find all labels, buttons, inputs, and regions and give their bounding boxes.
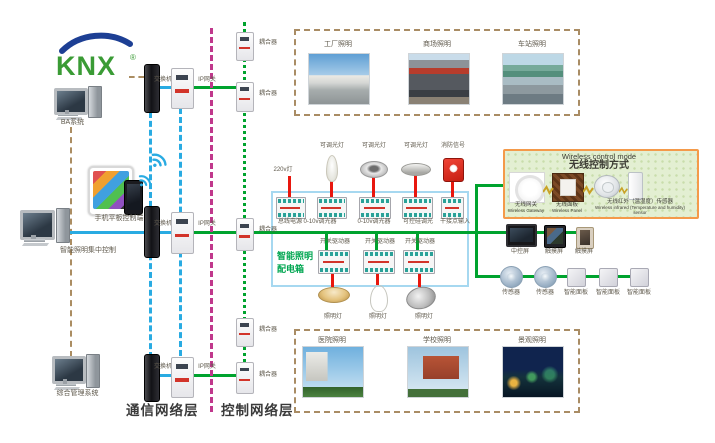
wireless-title-cn: 无线控制方式 <box>503 160 695 172</box>
dimmable-lamp-label: 可调光灯 <box>314 143 350 150</box>
central-control-pc <box>20 208 70 246</box>
coupler-icon <box>236 362 254 394</box>
management-system-label: 综合管理系统 <box>45 390 110 398</box>
network-switch-icon <box>144 354 160 402</box>
ctrl-layer-label: 控制网络层 <box>221 399 294 419</box>
separator-line <box>210 28 213 412</box>
coupler-label: 耦合器 <box>254 40 282 47</box>
coupler-icon <box>236 82 254 112</box>
school-lighting-label: 学校照明 <box>417 337 457 345</box>
sensor-icon <box>534 266 557 288</box>
lamp-label: 照明灯 <box>317 314 349 321</box>
dimmer-label: 0-10v调光器 <box>350 219 398 226</box>
dimmable-lamp-label: 可调光灯 <box>398 143 434 150</box>
fire-signal-label: 消防信号 <box>435 143 471 150</box>
bus-line-sensor-seg4 <box>616 275 630 278</box>
load-line-fire <box>451 180 454 197</box>
network-switch-icon <box>144 64 160 113</box>
load-line-220v <box>288 176 291 197</box>
load-line-lamp3 <box>418 272 421 287</box>
dimmer-label: 0-10v调光器 <box>296 219 344 226</box>
fire-alarm-icon <box>443 158 464 182</box>
coupler-icon <box>236 32 254 61</box>
station-lighting-label: 车站照明 <box>512 41 552 49</box>
central-screen-icon <box>506 224 537 247</box>
dimmer-module-icon <box>317 197 347 219</box>
factory-lighting-label: 工厂照明 <box>318 41 358 49</box>
touch-screen-label: 触摸屏 <box>570 249 598 256</box>
management-line-vertical <box>70 127 72 357</box>
smart-panel-label: 智能面板 <box>560 290 592 297</box>
hospital-photo <box>302 346 364 398</box>
bus-line-row2 <box>194 231 238 234</box>
ba-system-label: BA系统 <box>45 119 100 127</box>
dry-contact-label: 干接点输入 <box>437 219 473 226</box>
wireless-sensor-round-icon <box>594 175 620 198</box>
gateway-label: IP网关 <box>193 77 221 84</box>
sensor-label: 传感器 <box>532 290 558 297</box>
bus-line-screen-row <box>477 231 506 234</box>
smart-panel-icon <box>567 268 586 287</box>
bus-line-sensor-row <box>477 275 500 278</box>
mall-photo <box>408 53 470 105</box>
touch-screen-icon <box>544 225 566 248</box>
gateway-label: IP网关 <box>193 364 221 371</box>
switch-driver-icon <box>363 250 395 274</box>
ceiling-fixture-icon <box>318 287 350 303</box>
smart-panel-label: 智能面板 <box>592 290 624 297</box>
coupler-label: 耦合器 <box>254 91 282 98</box>
sensor-label: 传感器 <box>498 290 524 297</box>
pc-tower-icon <box>86 354 100 388</box>
wireless-sensor-rect-icon <box>628 172 643 200</box>
load-line-dim2 <box>372 176 375 197</box>
monitor-icon <box>54 88 88 115</box>
load-line-dim3 <box>414 175 417 197</box>
wireless-gateway-icon <box>509 172 545 203</box>
bus-line-row3 <box>194 374 238 377</box>
smart-panel-label: 智能面板 <box>623 290 655 297</box>
coupler-label: 耦合器 <box>254 227 282 234</box>
coupler-label: 耦合器 <box>254 327 282 334</box>
coupler-icon <box>236 218 254 251</box>
mall-lighting-label: 商场照明 <box>417 41 457 49</box>
sensor-icon <box>500 266 523 288</box>
load-220v-label: 220v灯 <box>266 167 300 174</box>
box-title-line2: 配电箱 <box>277 262 304 275</box>
landscape-photo <box>502 346 564 398</box>
pc-tower-icon <box>88 86 102 118</box>
bulb-icon <box>370 285 388 312</box>
wireless-panel-icon <box>552 173 584 202</box>
smart-panel-icon <box>599 268 618 287</box>
smart-panel-icon <box>630 268 649 287</box>
thyristor-dimmer-label: 可控硅调光 <box>398 219 438 226</box>
gateway-label: IP网关 <box>193 221 221 228</box>
monitor-icon <box>20 210 55 240</box>
comm-layer-label: 通信网络层 <box>126 399 199 419</box>
landscape-lighting-label: 景观照明 <box>512 337 552 345</box>
bus-line-row1 <box>194 86 238 89</box>
touch-screen-label: 触摸屏 <box>540 249 568 256</box>
svg-text:®: ® <box>130 53 136 62</box>
ip-gateway-icon <box>171 68 194 109</box>
central-screen-label: 中控屏 <box>505 249 535 256</box>
station-photo <box>502 53 564 105</box>
ip-gateway-icon <box>171 212 194 254</box>
bus-power-module-icon <box>276 197 306 219</box>
knx-logo: KNX ® <box>52 30 142 80</box>
switch-driver-icon <box>403 250 435 274</box>
dimmable-lamp-label: 可调光灯 <box>356 143 392 150</box>
switch-driver-label: 开关驱动器 <box>401 239 439 246</box>
downlight-icon <box>360 161 388 178</box>
rf-signal-icon <box>583 182 594 200</box>
wireless-panel-label-en: Wireless Panel <box>545 208 589 213</box>
lan-line-pc-to-switch <box>66 231 146 234</box>
bus-line-sensor-seg3 <box>584 275 599 278</box>
switch-driver-icon <box>318 250 350 274</box>
pc-tower-icon <box>56 208 70 243</box>
factory-photo <box>308 53 370 105</box>
lamp-label: 照明灯 <box>362 314 394 321</box>
switch-driver-label: 开关驱动器 <box>361 239 399 246</box>
management-system-pc <box>52 354 100 390</box>
svg-text:KNX: KNX <box>56 51 116 80</box>
network-switch-icon <box>144 206 160 258</box>
spotlight-icon <box>404 284 438 313</box>
rf-signal-icon <box>619 182 628 200</box>
load-line-lamp1 <box>331 272 334 287</box>
central-control-label: 智能照明集中控制 <box>48 247 128 255</box>
box-title-line1: 智能照明 <box>277 249 313 262</box>
wireless-sensor-label-en: Wireless infrared (Temperature and humid… <box>592 205 688 215</box>
load-line-dim1 <box>330 180 333 197</box>
dry-contact-module-icon <box>441 197 464 219</box>
knx-lighting-topology-diagram: KNX ® BA系统 手机平板控制端 智能照明集中控制 综合管理系统 交换机 交… <box>0 0 715 443</box>
rf-signal-icon <box>543 182 554 200</box>
thyristor-dimmer-icon <box>402 197 433 219</box>
hospital-lighting-label: 医院照明 <box>312 337 352 345</box>
lamp-label: 照明灯 <box>408 314 440 321</box>
dimmer-module-icon <box>359 197 391 219</box>
school-photo <box>407 346 469 398</box>
touch-screen-icon <box>576 227 594 249</box>
switch-driver-label: 开关驱动器 <box>316 239 354 246</box>
monitor-icon <box>52 356 86 384</box>
candle-bulb-icon <box>326 155 338 182</box>
ip-gateway-icon <box>171 357 194 398</box>
knx-logo-arc: KNX ® <box>52 30 142 80</box>
coupler-label: 耦合器 <box>254 372 282 379</box>
coupler-icon <box>236 318 254 347</box>
ceiling-lamp-icon <box>401 163 431 176</box>
ba-system-pc <box>54 86 102 120</box>
